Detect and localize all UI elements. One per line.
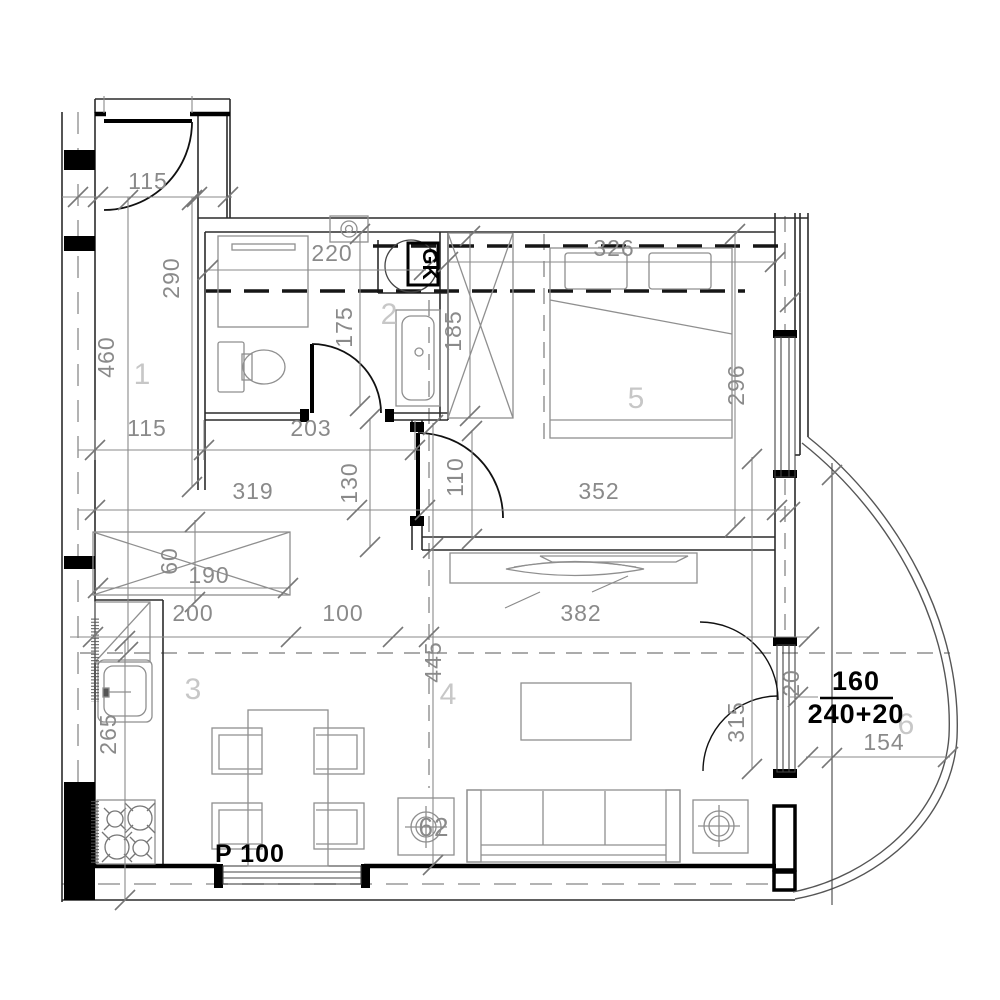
dim-closet-depth: 60 xyxy=(156,547,182,575)
dim-bath-width: 203 xyxy=(290,415,331,441)
floor-plan-sheet: 115 290 460 220 175 185 326 296 115 203 … xyxy=(0,0,1000,1000)
dim-bed-width: 326 xyxy=(593,235,634,261)
balcony-door-window xyxy=(777,645,795,772)
window-width-mark: 160 xyxy=(832,666,880,696)
floor-plan-drawing: 115 290 460 220 175 185 326 296 115 203 … xyxy=(0,0,1000,1000)
dim-passage: 100 xyxy=(322,600,363,626)
axis-dashed-lines xyxy=(62,112,950,898)
kitchen-window xyxy=(223,866,361,884)
dim-closet-span: 200 xyxy=(172,600,213,626)
window-height-mark: 240+20 xyxy=(808,699,905,729)
bold-annotations: GK 160 240+20 P 100 xyxy=(215,248,904,868)
dim-hall-lower: 319 xyxy=(232,478,273,504)
coffee-table xyxy=(521,683,631,740)
dim-hall-gap: 130 xyxy=(336,462,362,503)
sofa xyxy=(467,790,680,862)
dim-side-table: 62 xyxy=(419,812,450,842)
dim-hall-length: 460 xyxy=(93,336,119,377)
chairs xyxy=(212,728,364,849)
room-label-hall: 1 xyxy=(134,358,151,391)
dim-wall-offset: 20 xyxy=(778,669,804,697)
parapet-mark: P 100 xyxy=(215,840,285,868)
dim-bedroom-depth: 296 xyxy=(723,364,749,405)
vanity xyxy=(218,236,308,327)
hatch-strip-sink xyxy=(91,618,99,702)
tv-console xyxy=(450,553,697,583)
dim-entry-door: 115 xyxy=(128,168,168,194)
room-label-kitchen: 3 xyxy=(185,673,202,706)
side-table-right xyxy=(693,800,748,853)
hatch-strip-stove xyxy=(91,800,99,864)
dim-hall-segment: 290 xyxy=(158,257,184,298)
toilet xyxy=(218,342,285,392)
dim-balcony-door: 315 xyxy=(723,701,749,742)
washer-mark: GK xyxy=(418,248,441,280)
dim-vanity-width: 220 xyxy=(311,240,352,266)
furniture xyxy=(91,216,748,866)
bedroom-window xyxy=(775,337,795,477)
room-label-bathroom: 2 xyxy=(381,298,398,331)
bathroom-door xyxy=(312,344,381,413)
dim-closet-length: 185 xyxy=(440,310,466,351)
room-label-bedroom: 5 xyxy=(628,382,645,415)
room-label-living: 4 xyxy=(440,678,457,711)
dimension-lines xyxy=(62,96,950,901)
dim-closet-width: 190 xyxy=(188,562,229,588)
dim-tv-wall: 382 xyxy=(560,600,601,626)
dim-bedroom-width: 352 xyxy=(578,478,619,504)
bathtub xyxy=(396,310,440,406)
dim-living-depth: 445 xyxy=(420,641,446,682)
dim-bath-depth: 175 xyxy=(331,306,357,347)
dim-kitchen-run: 265 xyxy=(95,713,121,754)
dim-bedroom-door: 110 xyxy=(442,457,468,497)
vent-box xyxy=(330,216,368,242)
dim-hall-width: 115 xyxy=(127,415,167,441)
stove xyxy=(97,800,155,864)
balcony-door-swing xyxy=(700,622,778,771)
